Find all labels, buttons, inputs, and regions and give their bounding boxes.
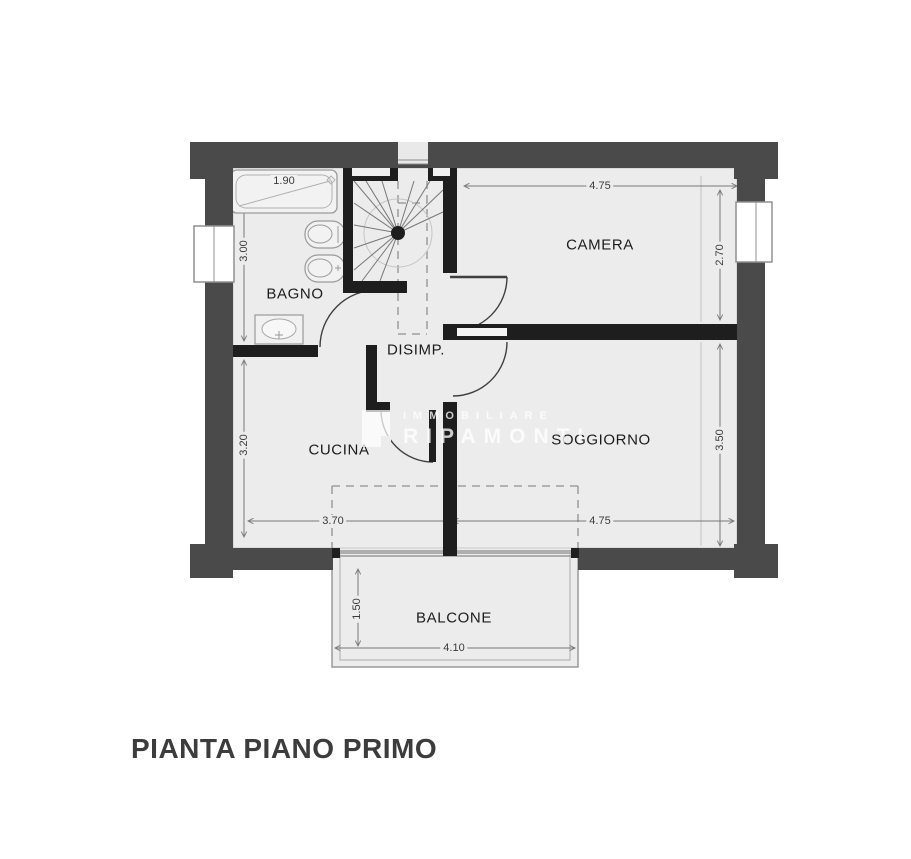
room-label-cucina: CUCINA xyxy=(308,442,369,459)
room-label-disimp: DISIMP. xyxy=(387,342,445,359)
dim-bagno-depth: 3.00 xyxy=(238,237,250,264)
dim-balcone-width: 4.10 xyxy=(440,642,467,654)
dim-cucina-width: 3.70 xyxy=(319,515,346,527)
dim-soggiorno-width: 4.75 xyxy=(586,515,613,527)
dim-cucina-depth: 3.20 xyxy=(238,431,250,458)
stair-center-post xyxy=(391,226,405,240)
stairwell-window xyxy=(398,142,428,164)
room-label-balcone: BALCONE xyxy=(416,610,492,627)
dim-vasca-width: 1.90 xyxy=(270,175,297,187)
plan-title: PIANTA PIANO PRIMO xyxy=(131,733,437,765)
floor-plan-drawing xyxy=(0,0,911,859)
toilet xyxy=(305,221,345,248)
floor-areas xyxy=(210,150,765,667)
room-label-bagno: BAGNO xyxy=(266,286,323,303)
camera-window xyxy=(736,202,772,262)
dim-soggiorno-depth: 3.50 xyxy=(714,426,726,453)
sink xyxy=(255,315,303,344)
room-label-camera: CAMERA xyxy=(566,237,634,254)
dim-balcone-depth: 1.50 xyxy=(351,595,363,622)
dim-camera-depth: 2.70 xyxy=(714,241,726,268)
dim-camera-width: 4.75 xyxy=(586,180,613,192)
cucina-door-leaf xyxy=(429,410,436,462)
floor-plan-canvas: BAGNO CAMERA DISIMP. CUCINA SOGGIORNO BA… xyxy=(0,0,911,859)
bidet xyxy=(305,255,345,282)
room-label-soggiorno: SOGGIORNO xyxy=(551,432,651,449)
